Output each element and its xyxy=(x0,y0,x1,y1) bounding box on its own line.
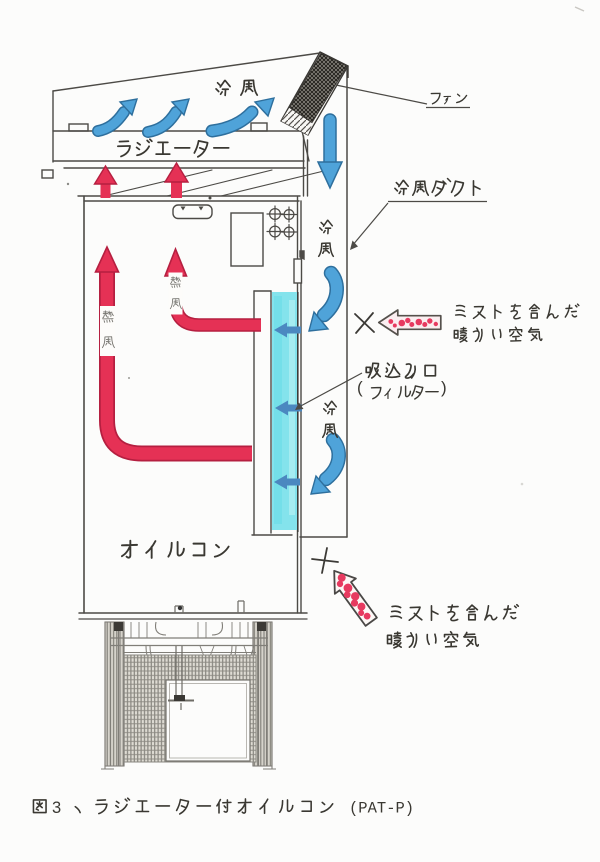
svg-text:(PAT-P): (PAT-P) xyxy=(349,800,414,818)
svg-text:(: ( xyxy=(357,378,363,397)
svg-text:3: 3 xyxy=(52,799,61,817)
svg-text:): ) xyxy=(441,378,447,397)
